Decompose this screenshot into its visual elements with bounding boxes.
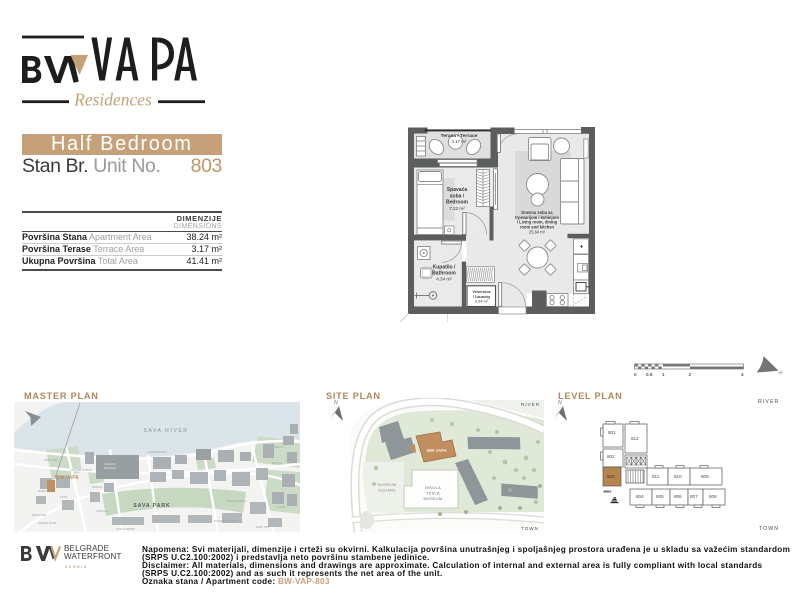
svg-text:808: 808 — [709, 494, 717, 499]
svg-text:TOWN: TOWN — [521, 526, 539, 531]
svg-text:MARERA HOTEL: MARERA HOTEL — [38, 522, 57, 525]
svg-text:803: 803 — [607, 474, 615, 479]
svg-text:SAVA PARK: SAVA PARK — [133, 503, 170, 509]
svg-text:BW VAPA: BW VAPA — [427, 448, 448, 453]
svg-text:WATERFRONT: WATERFRONT — [64, 552, 122, 561]
svg-text:HOTEL: HOTEL — [60, 496, 69, 499]
svg-text:N: N — [558, 400, 562, 406]
svg-text:806: 806 — [674, 494, 682, 499]
svg-text:SQUARE: SQUARE — [378, 488, 396, 493]
svg-text:3.17 m²: 3.17 m² — [452, 139, 467, 144]
svg-text:25.64 m²: 25.64 m² — [529, 229, 546, 234]
svg-text:MUSEUM: MUSEUM — [423, 496, 442, 501]
svg-text:OSNOVNA ŠKOLA: OSNOVNA ŠKOLA — [226, 500, 247, 503]
svg-text:SAVA BUSINESS: SAVA BUSINESS — [148, 451, 167, 454]
svg-text:802: 802 — [607, 454, 615, 459]
svg-text:2: 2 — [689, 372, 692, 377]
svg-text:Spavaća: Spavaća — [447, 187, 468, 193]
svg-text:N: N — [334, 400, 338, 406]
svg-text:LAZNICKA: LAZNICKA — [96, 510, 108, 513]
svg-text:0: 0 — [634, 372, 637, 377]
svg-text:4.34 m²: 4.34 m² — [436, 277, 452, 282]
svg-text:804: 804 — [636, 494, 644, 499]
svg-text:812: 812 — [631, 436, 639, 441]
svg-text:POZORIŠTE ZA DECU: POZORIŠTE ZA DECU — [214, 520, 239, 523]
svg-text:soba /: soba / — [450, 193, 465, 199]
svg-text:MARK TRG: MARK TRG — [256, 526, 269, 529]
svg-text:TESLA: TESLA — [426, 491, 440, 496]
svg-text:BEOGRAD: BEOGRAD — [104, 467, 116, 470]
svg-text:DOKOVI: DOKOVI — [274, 446, 284, 449]
svg-text:Bedroom: Bedroom — [446, 200, 469, 206]
svg-text:0.5: 0.5 — [646, 372, 653, 377]
svg-text:801: 801 — [608, 430, 616, 435]
svg-text:NIKOLA: NIKOLA — [425, 485, 441, 490]
svg-text:811: 811 — [652, 474, 660, 479]
svg-text:ZEMUN SIDE: ZEMUN SIDE — [32, 514, 47, 517]
svg-text:MUZEJ: MUZEJ — [38, 490, 47, 493]
svg-text:RIVER: RIVER — [521, 402, 540, 407]
svg-text:0.94 m²: 0.94 m² — [475, 300, 489, 304]
svg-text:PARKING: PARKING — [92, 486, 103, 489]
svg-text:MUSEUM: MUSEUM — [377, 482, 396, 487]
svg-text:BW VAPA: BW VAPA — [56, 475, 79, 481]
svg-text:BRISTOL: BRISTOL — [272, 462, 283, 465]
svg-text:1: 1 — [662, 372, 665, 377]
svg-text:807: 807 — [690, 494, 698, 499]
svg-text:CASTLE METRO: CASTLE METRO — [116, 528, 135, 531]
svg-text:810: 810 — [674, 474, 682, 479]
svg-text:809: 809 — [701, 474, 709, 479]
svg-text:SERBIA: SERBIA — [65, 564, 88, 569]
svg-text:USĆE PARK: USĆE PARK — [44, 459, 58, 462]
svg-text:GALERIJA: GALERIJA — [104, 463, 116, 466]
svg-text:805: 805 — [656, 494, 664, 499]
svg-text:CARAMEL MARKET: CARAMEL MARKET — [70, 469, 93, 472]
svg-text:N: N — [778, 369, 785, 376]
svg-text:GLAVNA: GLAVNA — [276, 506, 286, 509]
svg-text:SAVA RIVER: SAVA RIVER — [143, 428, 188, 434]
svg-text:/ Laundry: / Laundry — [473, 294, 491, 299]
svg-text:7.32 m²: 7.32 m² — [449, 206, 465, 211]
svg-text:Residences: Residences — [73, 90, 152, 110]
svg-text:4: 4 — [741, 372, 744, 377]
